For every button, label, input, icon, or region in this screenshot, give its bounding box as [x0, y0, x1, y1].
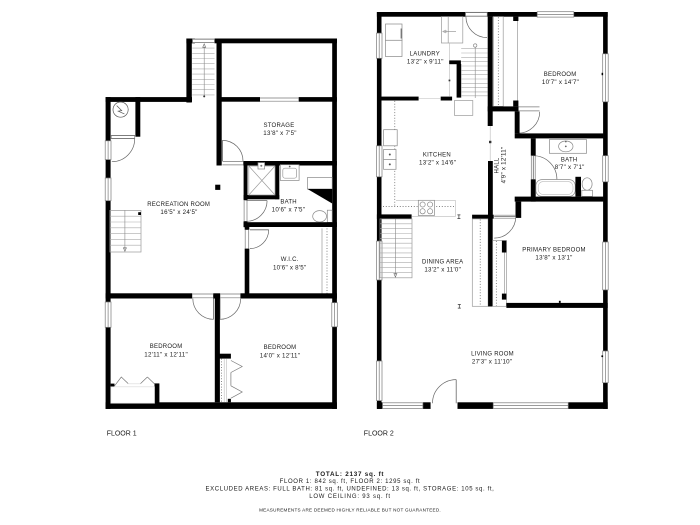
svg-text:16'5" x 24'5": 16'5" x 24'5": [160, 209, 197, 216]
svg-text:27'3" x 11'10": 27'3" x 11'10": [472, 359, 512, 366]
svg-text:PRIMARY BEDROOM: PRIMARY BEDROOM: [522, 247, 586, 253]
svg-text:13'8" x 7'5": 13'8" x 7'5": [263, 130, 297, 137]
svg-text:FLOOR 2: FLOOR 2: [364, 431, 394, 438]
svg-text:LIVING ROOM: LIVING ROOM: [471, 352, 514, 358]
svg-text:LAUNDRY: LAUNDRY: [410, 52, 440, 58]
svg-text:STORAGE: STORAGE: [264, 123, 295, 129]
svg-text:12'11" x 12'11": 12'11" x 12'11": [144, 351, 188, 358]
svg-text:TOTAL: 2137 sq. ft: TOTAL: 2137 sq. ft: [316, 471, 385, 478]
svg-text:13'2" x 11'0": 13'2" x 11'0": [424, 267, 461, 274]
svg-text:10'6" x 8'5": 10'6" x 8'5": [273, 264, 307, 271]
svg-text:LOW CEILING: 93 sq. ft: LOW CEILING: 93 sq. ft: [309, 494, 391, 500]
svg-text:BATH: BATH: [280, 200, 297, 206]
svg-text:BEDROOM: BEDROOM: [150, 344, 183, 350]
svg-text:DINING AREA: DINING AREA: [422, 260, 463, 266]
svg-text:RECREATION ROOM: RECREATION ROOM: [147, 202, 210, 208]
svg-text:14'0" x 12'11": 14'0" x 12'11": [260, 352, 300, 359]
svg-text:BATH: BATH: [561, 157, 578, 163]
svg-text:13'8" x 13'1": 13'8" x 13'1": [535, 254, 572, 261]
svg-text:4'9" x 12'11": 4'9" x 12'11": [500, 147, 507, 184]
svg-text:MEASUREMENTS ARE DEEMED HIGHLY: MEASUREMENTS ARE DEEMED HIGHLY RELIABLE …: [259, 507, 441, 512]
svg-text:EXCLUDED AREAS: FULL BATH: 81: EXCLUDED AREAS: FULL BATH: 81 sq. ft, UN…: [206, 487, 495, 493]
svg-text:BEDROOM: BEDROOM: [264, 345, 297, 351]
svg-text:BEDROOM: BEDROOM: [544, 72, 577, 78]
svg-text:FLOOR 1: FLOOR 1: [107, 431, 137, 438]
svg-text:13'2" x 14'6": 13'2" x 14'6": [419, 159, 456, 166]
svg-text:13'2" x 9'11": 13'2" x 9'11": [407, 59, 444, 66]
svg-text:10'6" x 7'5": 10'6" x 7'5": [272, 207, 306, 214]
svg-text:8'7" x 7'1": 8'7" x 7'1": [555, 164, 585, 171]
svg-text:W.I.C.: W.I.C.: [281, 257, 299, 263]
svg-text:FLOOR 1: 842 sq. ft, FLOOR 2:: FLOOR 1: 842 sq. ft, FLOOR 2: 1295 sq. f…: [280, 479, 421, 485]
svg-text:10'7" x 14'7": 10'7" x 14'7": [542, 79, 579, 86]
svg-text:KITCHEN: KITCHEN: [423, 152, 451, 158]
